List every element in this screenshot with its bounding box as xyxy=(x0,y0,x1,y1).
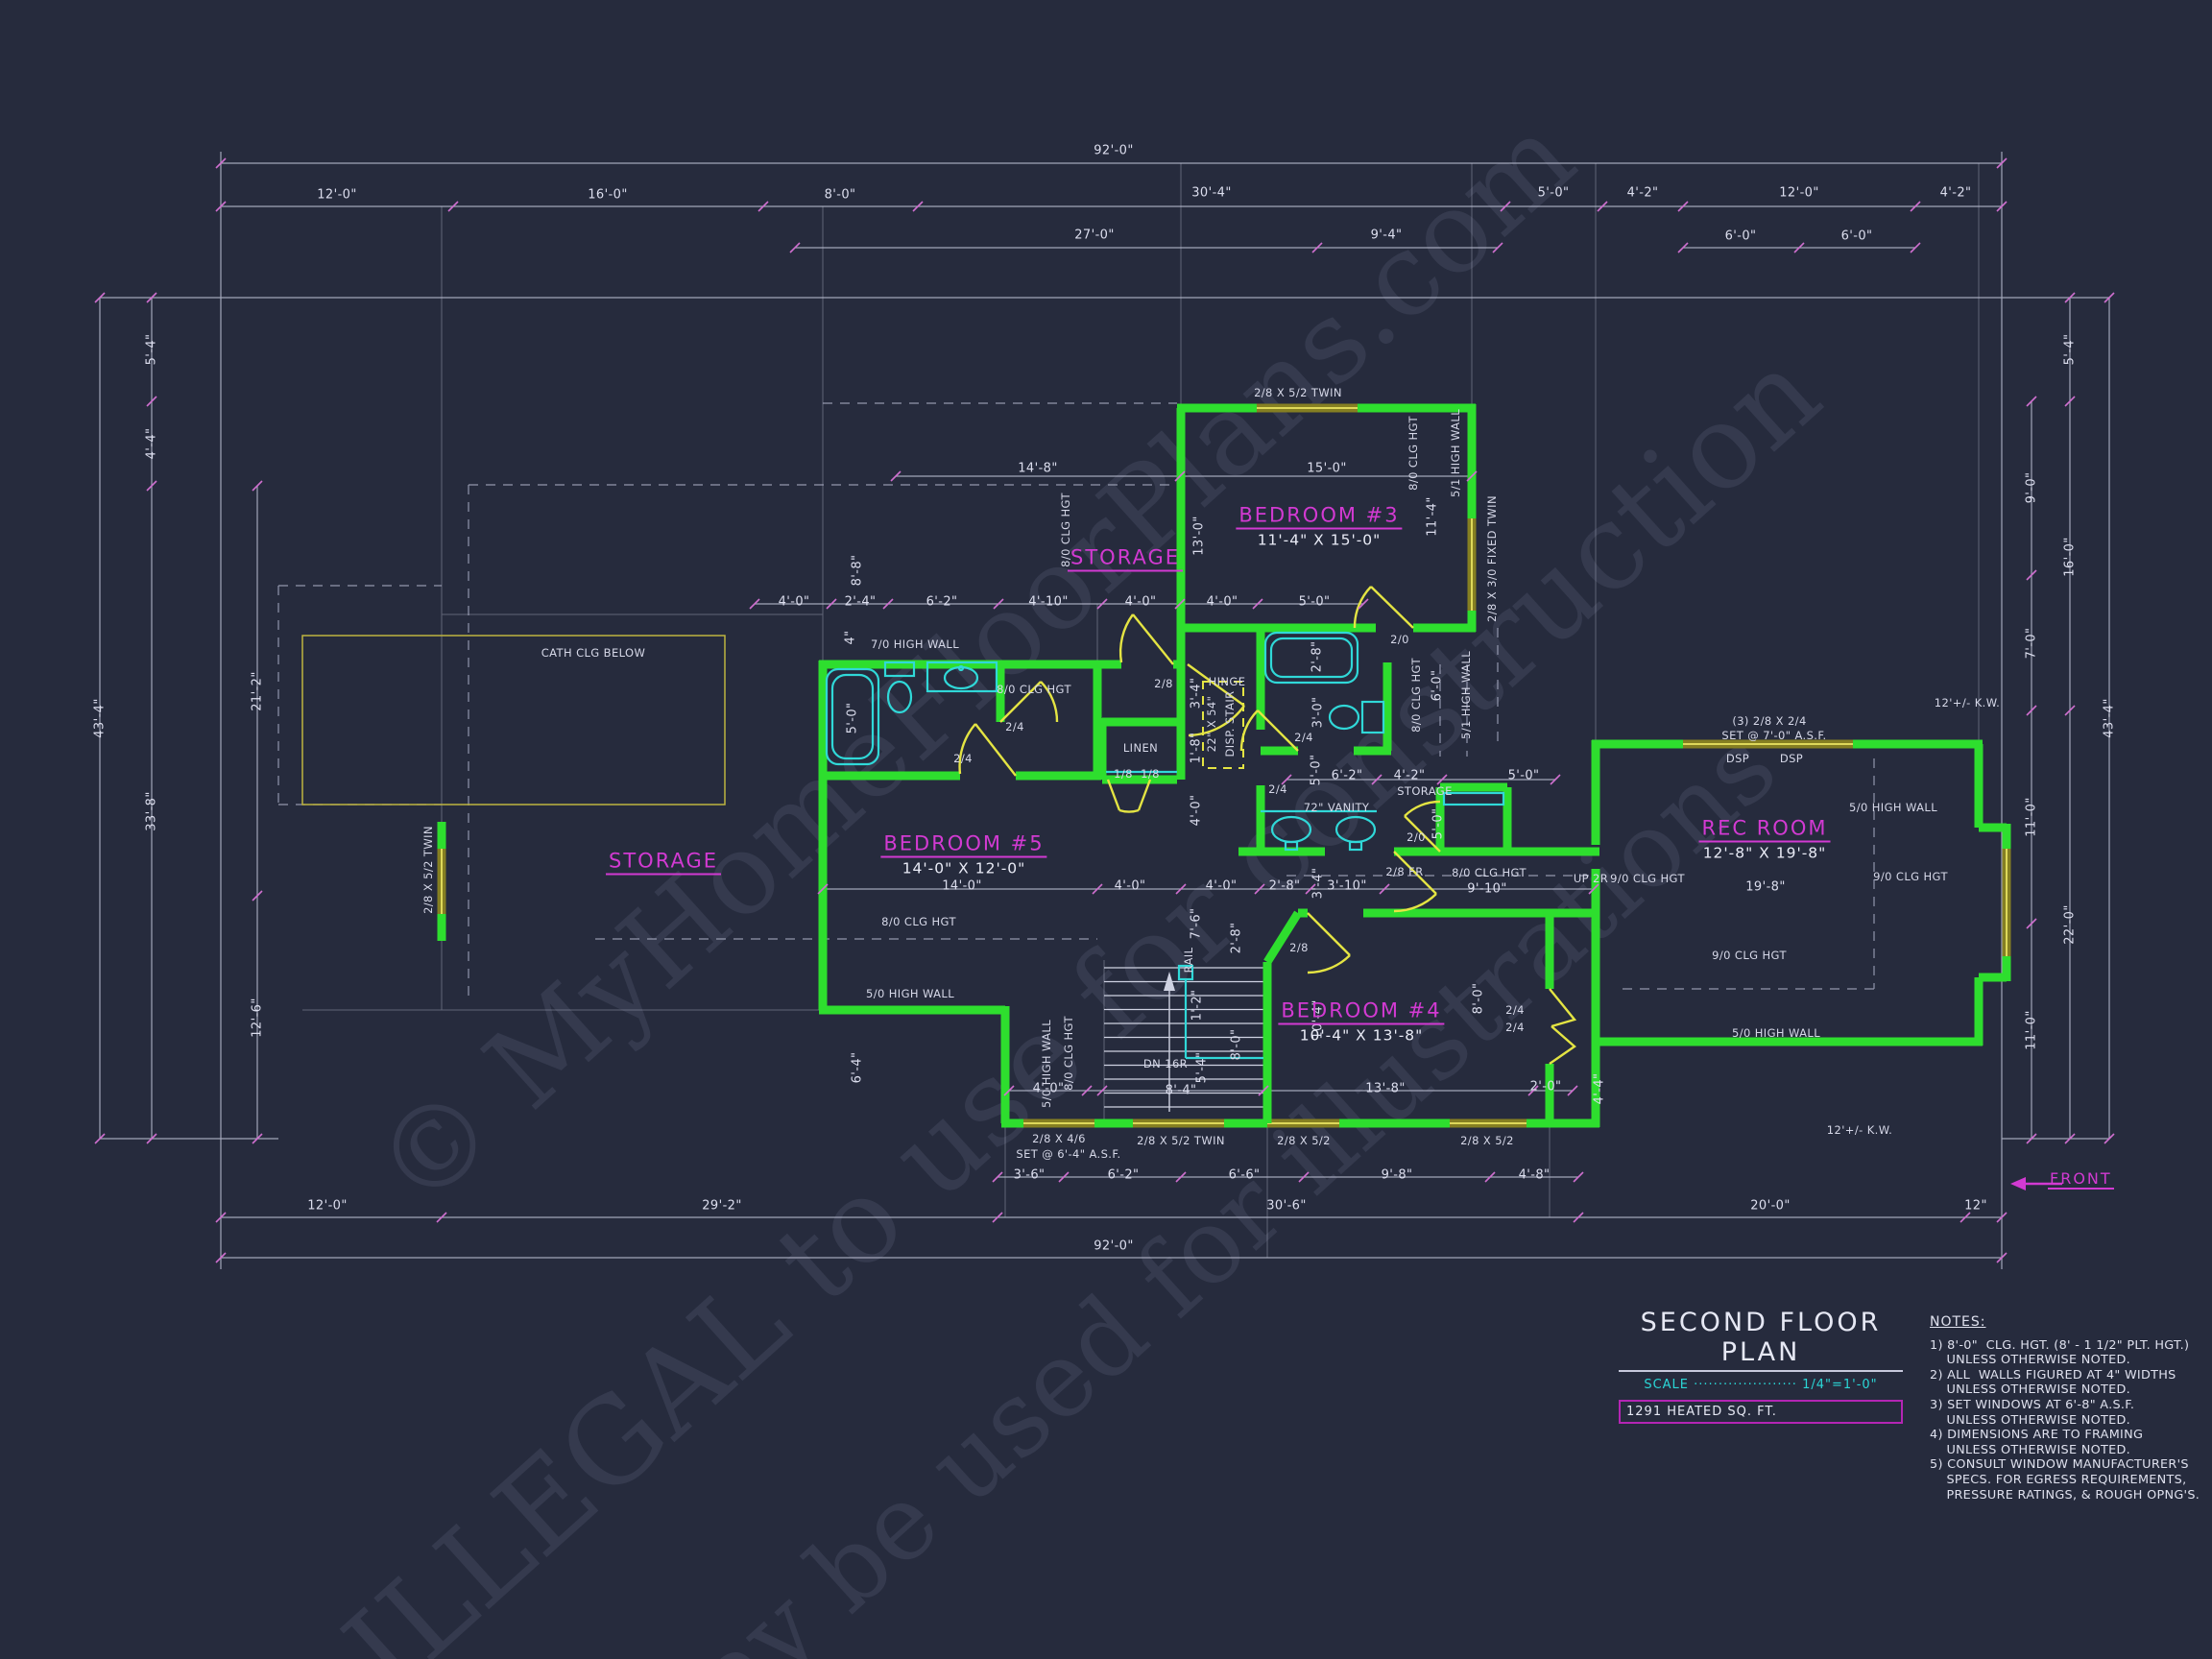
notes-lines: 1) 8'-0" CLG. HGT. (8' - 1 1/2" PLT. HGT… xyxy=(1930,1338,2212,1503)
room-size: 12'-8" X 19'-8" xyxy=(1699,845,1831,862)
room-size: 14'-0" X 12'-0" xyxy=(880,860,1046,878)
room-label: BEDROOM #410'-4" X 13'-8" xyxy=(1278,999,1444,1045)
room-size: 11'-4" X 15'-0" xyxy=(1236,532,1402,549)
room-name: BEDROOM #3 xyxy=(1236,504,1402,530)
room-name: BEDROOM #5 xyxy=(880,832,1046,858)
note-line: 4) DIMENSIONS ARE TO FRAMING xyxy=(1930,1428,2212,1443)
room-label: STORAGE xyxy=(1068,546,1183,572)
scale-label: SCALE xyxy=(1644,1378,1689,1392)
room-label: REC ROOM12'-8" X 19'-8" xyxy=(1699,817,1831,862)
plan-title: SECOND FLOOR PLAN xyxy=(1619,1308,1903,1372)
note-line: UNLESS OTHERWISE NOTED. xyxy=(1930,1413,2212,1429)
room-name: BEDROOM #4 xyxy=(1278,999,1444,1025)
note-line: SPECS. FOR EGRESS REQUIREMENTS, xyxy=(1930,1473,2212,1488)
note-line: UNLESS OTHERWISE NOTED. xyxy=(1930,1353,2212,1368)
room-label: BEDROOM #311'-4" X 15'-0" xyxy=(1236,504,1402,549)
room-name: REC ROOM xyxy=(1699,817,1831,843)
heated-area-box: 1291 HEATED SQ. FT. xyxy=(1619,1400,1903,1424)
note-line: 3) SET WINDOWS AT 6'-8" A.S.F. xyxy=(1930,1398,2212,1413)
note-line: PRESSURE RATINGS, & ROUGH OPNG'S. xyxy=(1930,1488,2212,1503)
notes-heading: NOTES: xyxy=(1930,1315,2212,1331)
title-block: SECOND FLOOR PLAN SCALE ················… xyxy=(1619,1308,1903,1424)
room-label: STORAGE xyxy=(606,850,721,876)
note-line: 5) CONSULT WINDOW MANUFACTURER'S xyxy=(1930,1457,2212,1473)
note-line: 1) 8'-0" CLG. HGT. (8' - 1 1/2" PLT. HGT… xyxy=(1930,1338,2212,1354)
room-size: 10'-4" X 13'-8" xyxy=(1278,1027,1444,1045)
room-label: BEDROOM #514'-0" X 12'-0" xyxy=(880,832,1046,878)
note-line: UNLESS OTHERWISE NOTED. xyxy=(1930,1382,2212,1398)
front-label: FRONT xyxy=(2048,1169,2114,1190)
note-line: UNLESS OTHERWISE NOTED. xyxy=(1930,1443,2212,1458)
room-name: STORAGE xyxy=(606,850,721,876)
notes-block: NOTES: 1) 8'-0" CLG. HGT. (8' - 1 1/2" P… xyxy=(1930,1315,2212,1503)
floorplan-sheet: © MyHomeFloorPlans.comILLEGAL to use for… xyxy=(0,0,2212,1659)
scale-value: 1/4"=1'-0" xyxy=(1802,1378,1878,1392)
scale-row: SCALE ····················· 1/4"=1'-0" xyxy=(1619,1378,1903,1392)
note-line: 2) ALL WALLS FIGURED AT 4" WIDTHS xyxy=(1930,1368,2212,1383)
room-name: STORAGE xyxy=(1068,546,1183,572)
scale-dots: ····················· xyxy=(1694,1378,1797,1392)
